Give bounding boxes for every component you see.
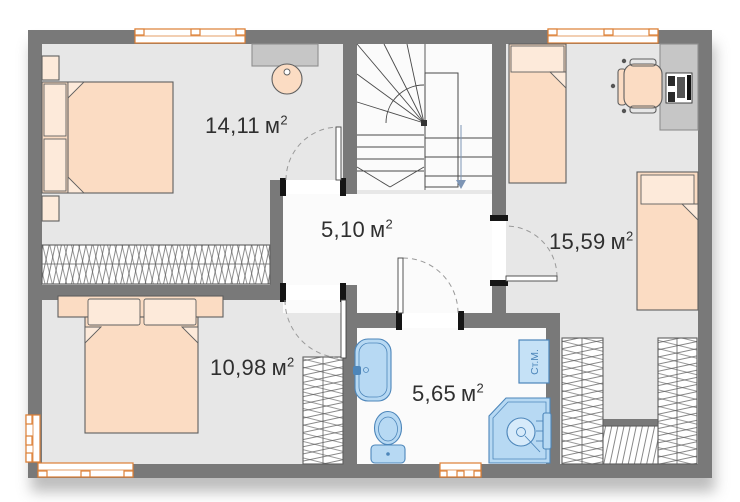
area-sup: 2	[287, 355, 295, 370]
closet-right	[658, 338, 697, 464]
washing-machine-label: Ст.М.	[529, 349, 541, 375]
nightstand-bottom	[42, 196, 59, 221]
area-sup: 2	[476, 381, 484, 396]
area-unit: м	[272, 355, 287, 380]
area-sup: 2	[385, 217, 393, 232]
area-value: 5,10	[321, 217, 365, 242]
double-bed-small	[85, 299, 198, 433]
nightstand-top	[42, 56, 59, 80]
closet-middle	[603, 426, 658, 464]
window-bottom-left-horizontal	[38, 463, 133, 477]
closet-left	[562, 338, 603, 464]
room-area-label-bathroom: 5,65м2	[412, 381, 484, 407]
area-value: 10,98	[210, 355, 267, 380]
room-area-label-bedroom-2: 15,59м2	[549, 229, 634, 255]
area-sup: 2	[280, 113, 288, 128]
window-top-right	[548, 29, 658, 43]
room-area-label-hall: 5,10м2	[321, 217, 393, 243]
area-unit: м	[611, 229, 626, 254]
wardrobe-strip	[42, 245, 270, 284]
area-sup: 2	[626, 229, 634, 244]
window-top-left	[135, 29, 245, 43]
washing-machine: Ст.М.	[519, 340, 549, 383]
sink	[353, 339, 391, 401]
wardrobe-small-bedroom	[303, 357, 343, 464]
dressing-table	[252, 44, 318, 66]
double-bed-large	[42, 82, 173, 193]
computer	[666, 73, 692, 103]
window-bathroom	[440, 463, 481, 477]
area-value: 14,11	[205, 113, 260, 138]
headboard-shelf	[58, 296, 223, 317]
area-value: 5,65	[412, 381, 456, 406]
area-unit: м	[370, 217, 385, 242]
area-unit: м	[265, 113, 280, 138]
window-bottom-left-vertical	[26, 415, 40, 462]
area-unit: м	[461, 381, 476, 406]
shower	[489, 398, 551, 463]
room-area-label-bedroom-1: 14,11м2	[205, 113, 288, 139]
single-bed-1	[509, 44, 566, 183]
single-bed-2	[637, 172, 698, 310]
area-value: 15,59	[549, 229, 606, 254]
room-area-label-bedroom-3: 10,98м2	[210, 355, 295, 381]
stool	[272, 64, 302, 94]
